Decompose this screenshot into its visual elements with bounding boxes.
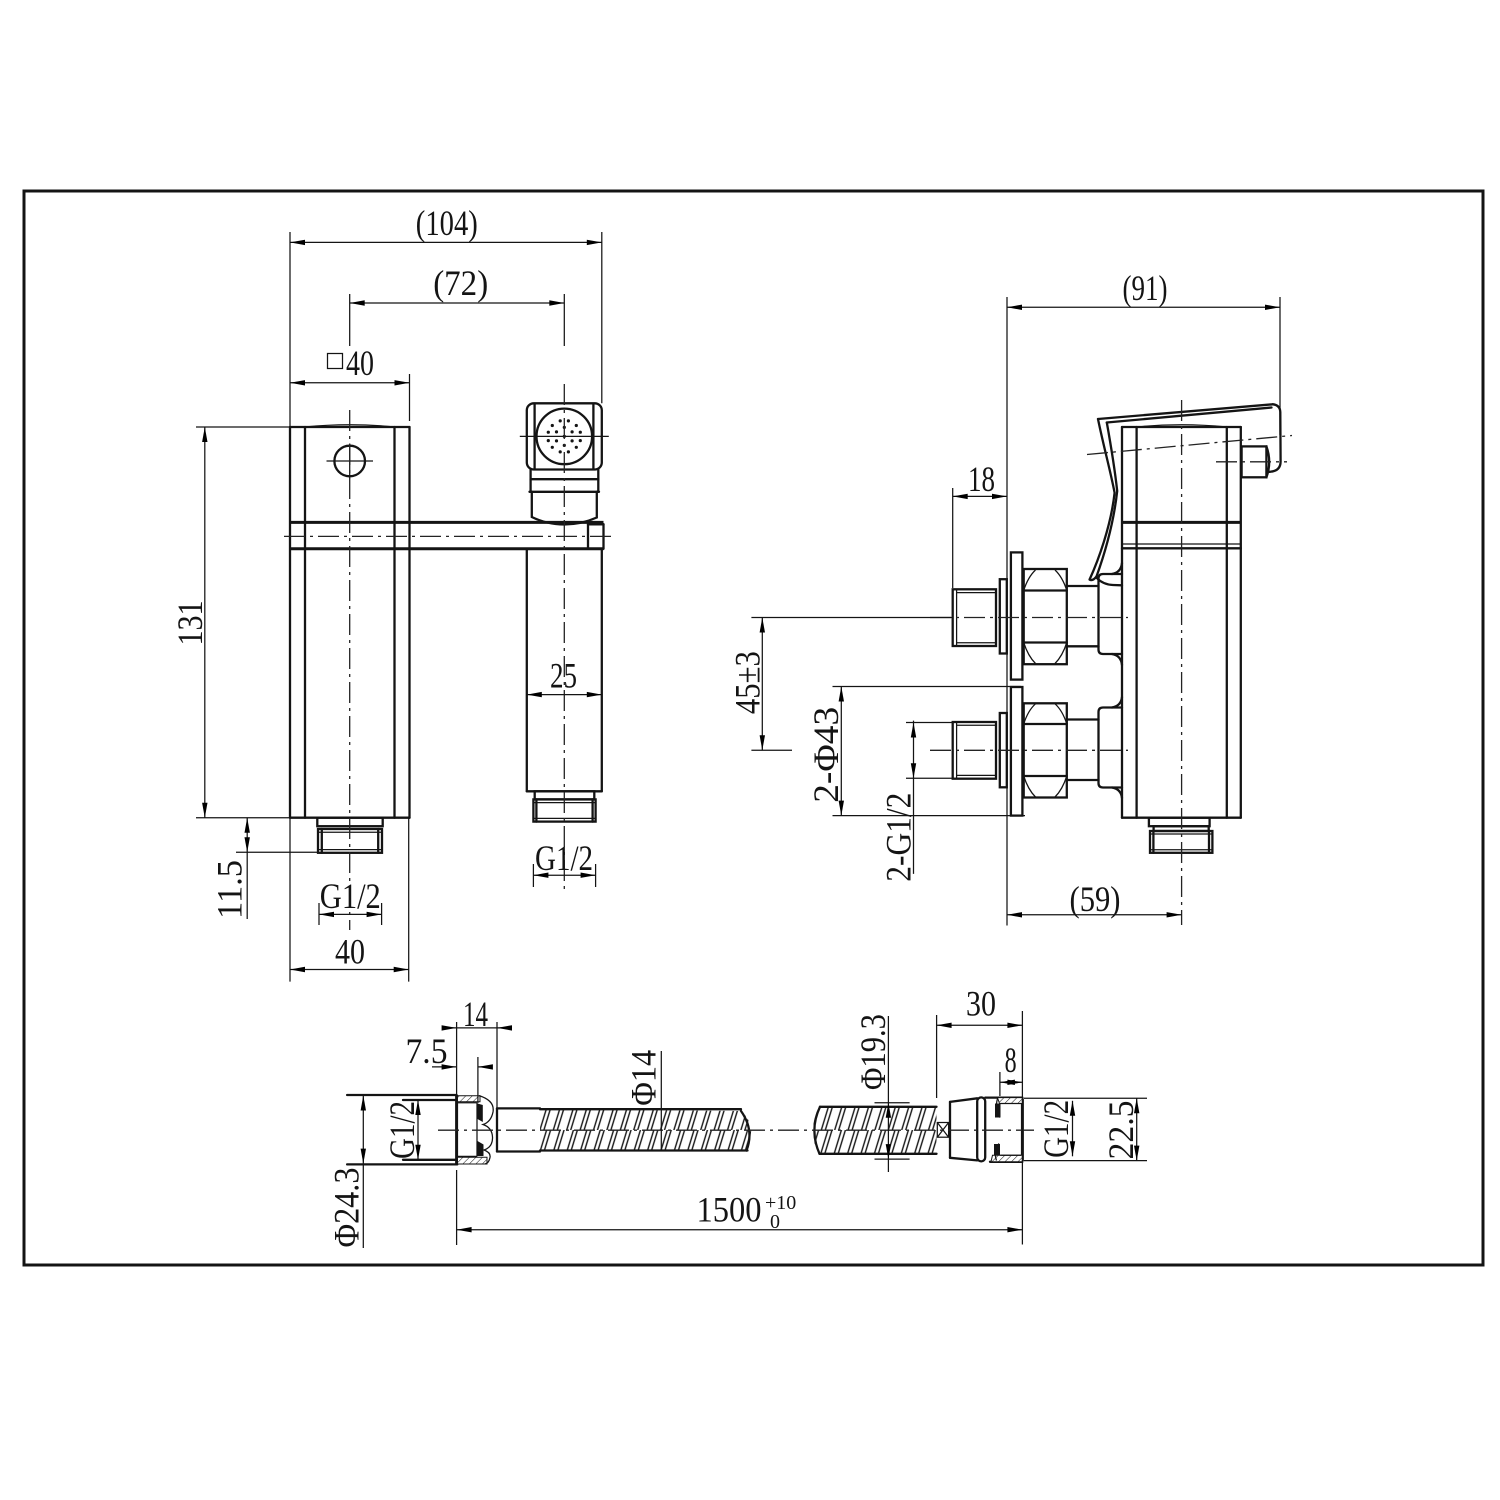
svg-text:G1/2: G1/2 xyxy=(382,1101,422,1159)
svg-text:(59): (59) xyxy=(1070,879,1121,919)
svg-text:Φ24.3: Φ24.3 xyxy=(327,1168,367,1248)
svg-text:2-G1/2: 2-G1/2 xyxy=(878,793,918,882)
svg-text:(91): (91) xyxy=(1123,268,1168,308)
svg-text:30: 30 xyxy=(966,984,996,1024)
svg-text:2-Φ43: 2-Φ43 xyxy=(806,707,846,803)
svg-text:8: 8 xyxy=(1005,1040,1017,1080)
svg-text:7.5: 7.5 xyxy=(406,1031,448,1071)
svg-text:25: 25 xyxy=(550,656,577,696)
svg-text:(72): (72) xyxy=(433,263,488,303)
svg-text:0: 0 xyxy=(770,1211,780,1233)
svg-text:G1/2: G1/2 xyxy=(535,838,593,878)
svg-text:Φ14: Φ14 xyxy=(624,1050,664,1106)
svg-text:14: 14 xyxy=(463,994,488,1034)
svg-text:18: 18 xyxy=(968,459,995,499)
svg-text:Φ19.3: Φ19.3 xyxy=(853,1014,893,1090)
svg-text:11.5: 11.5 xyxy=(210,860,250,919)
svg-text:(104): (104) xyxy=(416,203,478,243)
svg-text:G1/2: G1/2 xyxy=(1036,1100,1076,1158)
svg-text:22.5: 22.5 xyxy=(1101,1101,1141,1160)
svg-text:1500: 1500 xyxy=(697,1190,762,1230)
svg-text:G1/2: G1/2 xyxy=(320,876,381,916)
svg-text:45±3: 45±3 xyxy=(728,651,768,714)
svg-text:40: 40 xyxy=(335,932,365,972)
svg-text:40: 40 xyxy=(346,343,374,383)
svg-text:131: 131 xyxy=(170,601,210,646)
